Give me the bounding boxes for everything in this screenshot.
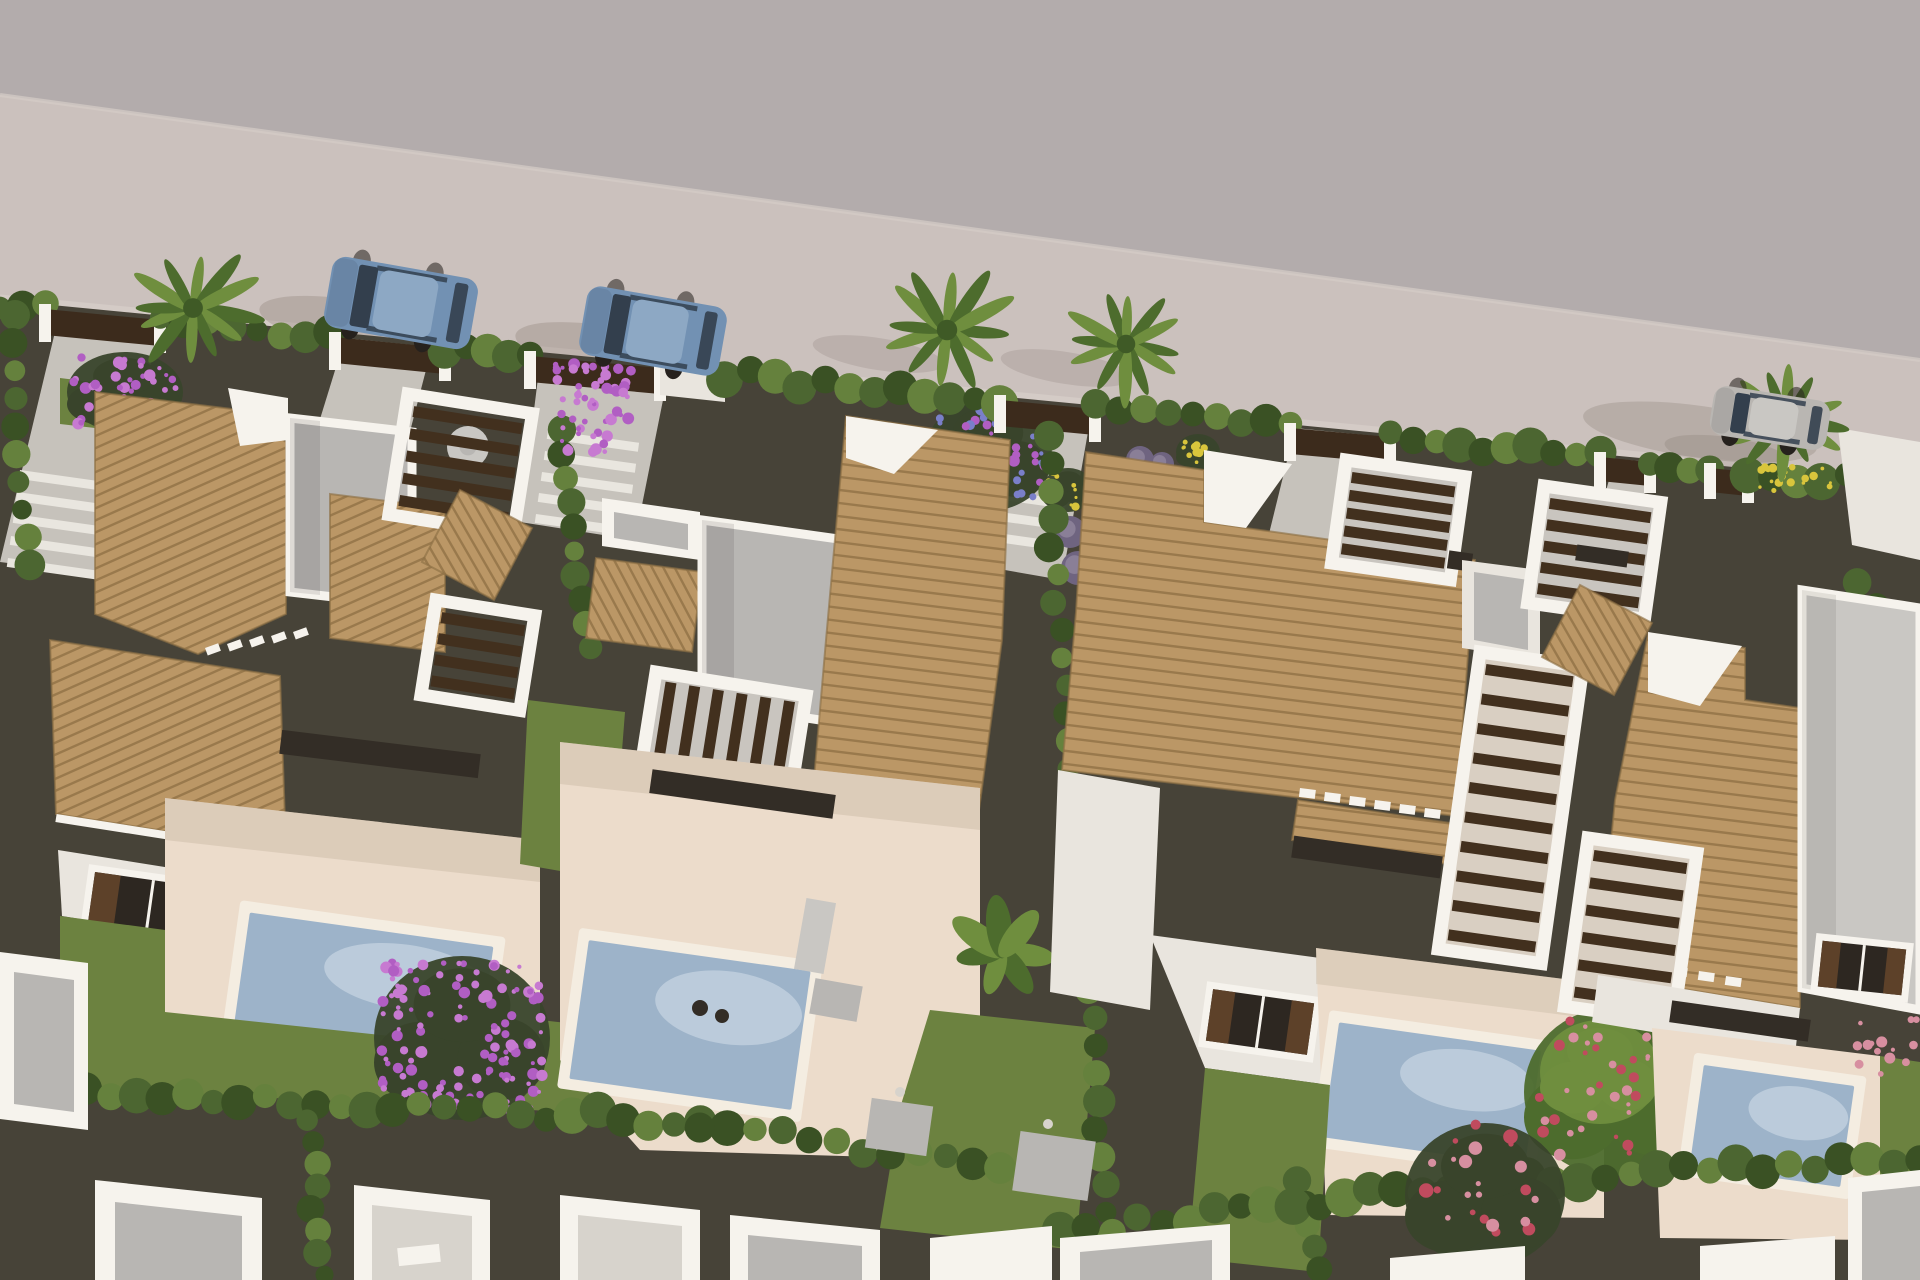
- aerial-render: [0, 0, 1920, 1280]
- shower-head: [1043, 1119, 1053, 1129]
- shower-head: [895, 1087, 905, 1097]
- shower-pad: [865, 1098, 933, 1156]
- flat-roof: [14, 972, 74, 1112]
- flat-roof: [1862, 1186, 1920, 1280]
- plant-pot: [692, 1000, 708, 1016]
- carport-pergola: [1332, 460, 1465, 580]
- flat-roof: [578, 1215, 682, 1280]
- side-facade: [1050, 770, 1160, 1010]
- flat-roof: [372, 1205, 472, 1280]
- plant-pot: [715, 1009, 729, 1023]
- scene-canvas: [0, 0, 1920, 1280]
- terrace-shade: [290, 418, 320, 595]
- side-wall-top: [1474, 572, 1528, 650]
- window: [1810, 933, 1914, 1003]
- shower-pad: [1012, 1131, 1096, 1201]
